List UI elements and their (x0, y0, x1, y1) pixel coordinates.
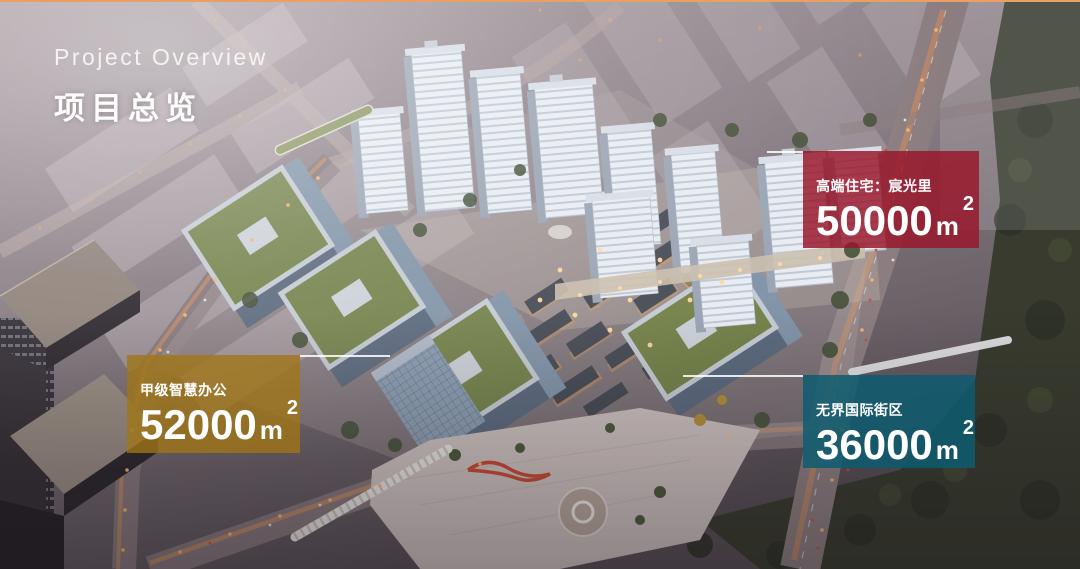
title-block: Project Overview 项目总览 (54, 44, 268, 128)
leader-line (683, 375, 803, 377)
area-superscript: 2 (287, 398, 298, 418)
callout-street-label: 无界国际街区 (816, 403, 965, 417)
callout-residential-value: 50000m2 (816, 200, 969, 242)
page-title-en: Project Overview (54, 44, 268, 71)
callout-street-value: 36000m2 (816, 424, 965, 466)
area-unit: m (936, 435, 959, 465)
page-title-zh: 项目总览 (54, 83, 268, 128)
slide: Project Overview 项目总览 高端住宅：宸光里 50000m2 甲… (0, 0, 1080, 569)
top-border-line (0, 0, 1080, 2)
area-unit: m (936, 211, 959, 241)
area-number: 52000 (140, 401, 257, 448)
callout-residential-label: 高端住宅：宸光里 (816, 179, 969, 193)
area-number: 50000 (816, 197, 933, 244)
callout-office-label: 甲级智慧办公 (140, 383, 290, 397)
leader-line (300, 355, 390, 357)
area-superscript: 2 (963, 418, 974, 438)
area-number: 36000 (816, 421, 933, 468)
callout-street: 无界国际街区 36000m2 (803, 375, 975, 468)
callout-residential: 高端住宅：宸光里 50000m2 (803, 151, 979, 248)
area-superscript: 2 (963, 194, 974, 214)
callout-office-value: 52000m2 (140, 404, 290, 446)
callout-office: 甲级智慧办公 52000m2 (127, 355, 300, 453)
area-unit: m (260, 415, 283, 445)
leader-line (767, 151, 803, 153)
